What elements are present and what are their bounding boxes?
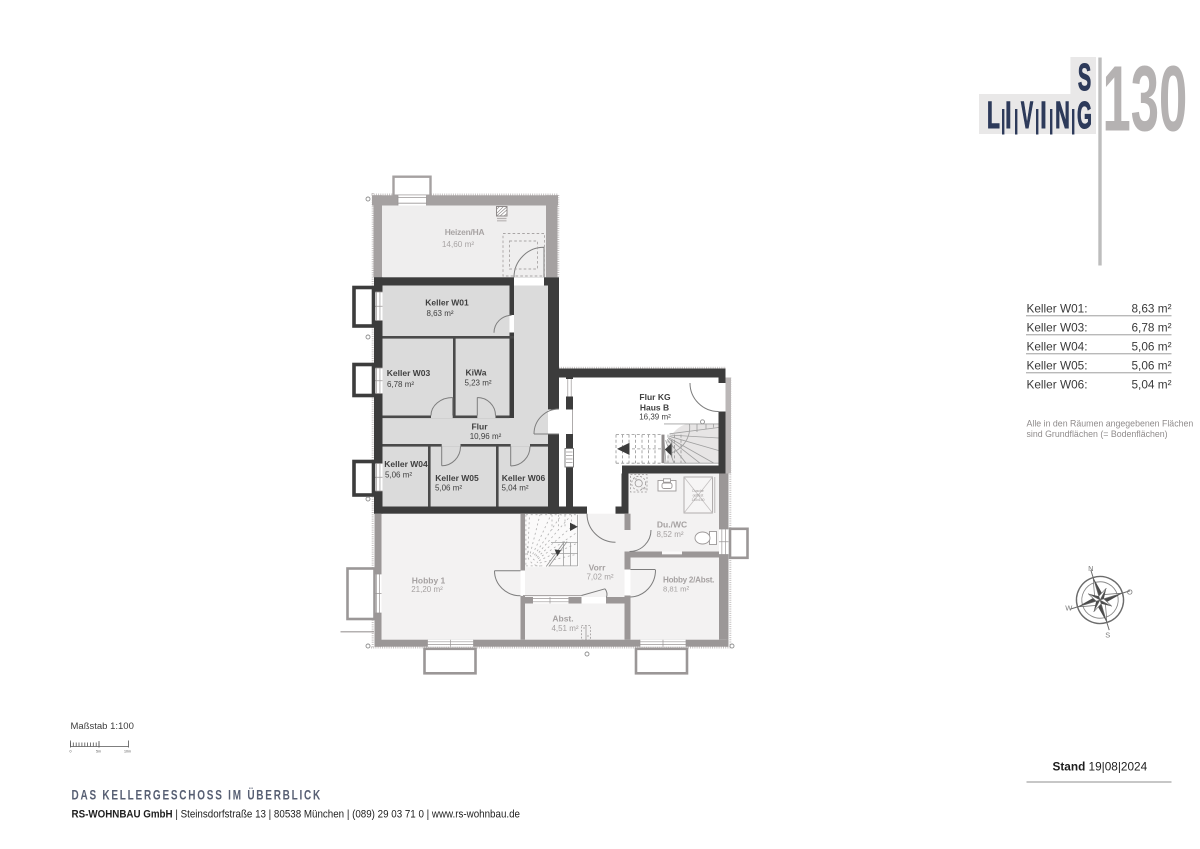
svg-text:5,06 m²: 5,06 m² bbox=[1132, 359, 1172, 373]
svg-text:6,78 m²: 6,78 m² bbox=[1132, 321, 1172, 335]
svg-text:Maßstab 1:100: Maßstab 1:100 bbox=[71, 721, 134, 732]
svg-text:Hobby 1: Hobby 1 bbox=[412, 576, 446, 586]
svg-text:Keller W03: Keller W03 bbox=[387, 368, 431, 378]
svg-text:N: N bbox=[1055, 93, 1070, 137]
svg-text:W: W bbox=[1065, 604, 1073, 613]
svg-text:16,39 m²: 16,39 m² bbox=[639, 413, 671, 422]
svg-text:S: S bbox=[1078, 56, 1091, 99]
svg-text:Alle in den Räumen angegebenen: Alle in den Räumen angegebenen Flächen bbox=[1027, 419, 1194, 429]
svg-text:21,20 m²: 21,20 m² bbox=[411, 585, 443, 594]
svg-text:8,63 m²: 8,63 m² bbox=[1132, 302, 1172, 316]
svg-text:Heizen/HA: Heizen/HA bbox=[445, 227, 485, 237]
svg-text:Keller W05: Keller W05 bbox=[435, 473, 479, 483]
svg-text:sind Grundflächen (= Bodenfläc: sind Grundflächen (= Bodenflächen) bbox=[1027, 429, 1168, 439]
svg-text:Haus B: Haus B bbox=[640, 403, 669, 413]
svg-text:Keller W04:: Keller W04: bbox=[1027, 340, 1088, 354]
svg-text:Stand 19|08|2024: Stand 19|08|2024 bbox=[1053, 760, 1148, 774]
svg-text:8,81 m²: 8,81 m² bbox=[663, 585, 690, 594]
svg-text:Keller W04: Keller W04 bbox=[384, 459, 428, 469]
svg-text:14,60 m²: 14,60 m² bbox=[442, 240, 475, 249]
svg-text:RS-WOHNBAU GmbH | Steinsdorfst: RS-WOHNBAU GmbH | Steinsdorfstraße 13 | … bbox=[72, 809, 521, 821]
svg-text:130: 130 bbox=[1103, 46, 1188, 150]
svg-text:5,04 m²: 5,04 m² bbox=[1132, 378, 1172, 392]
svg-text:5,23 m²: 5,23 m² bbox=[464, 378, 491, 387]
svg-text:Vorr: Vorr bbox=[589, 563, 607, 573]
svg-text:Keller W05:: Keller W05: bbox=[1027, 359, 1088, 373]
svg-text:8,52 m²: 8,52 m² bbox=[656, 530, 683, 539]
svg-text:S: S bbox=[1105, 631, 1110, 640]
svg-text:5m: 5m bbox=[96, 750, 101, 754]
svg-text:Hobby 2/Abst.: Hobby 2/Abst. bbox=[663, 575, 714, 584]
svg-text:Keller W01: Keller W01 bbox=[425, 298, 469, 308]
svg-text:Dusche: Dusche bbox=[692, 489, 704, 493]
svg-text:5,06 m²: 5,06 m² bbox=[435, 484, 462, 493]
svg-text:I: I bbox=[1040, 94, 1046, 137]
svg-text:L: L bbox=[987, 93, 1000, 136]
svg-text:Du./WC: Du./WC bbox=[657, 520, 687, 530]
svg-text:8,63 m²: 8,63 m² bbox=[426, 309, 453, 318]
svg-text:5,06 m²: 5,06 m² bbox=[1132, 340, 1172, 354]
svg-text:6,78 m²: 6,78 m² bbox=[387, 380, 414, 389]
svg-text:5,04 m²: 5,04 m² bbox=[501, 484, 528, 493]
svg-text:O: O bbox=[1127, 588, 1133, 597]
svg-text:gefliest: gefliest bbox=[693, 494, 704, 498]
svg-text:I: I bbox=[1005, 94, 1011, 137]
svg-text:G: G bbox=[1077, 95, 1092, 137]
svg-text:0: 0 bbox=[70, 750, 72, 754]
svg-text:5,06 m²: 5,06 m² bbox=[385, 471, 412, 480]
svg-text:WM: WM bbox=[641, 487, 647, 491]
svg-text:KiWa: KiWa bbox=[466, 368, 487, 378]
svg-text:10,96 m²: 10,96 m² bbox=[470, 432, 502, 441]
svg-text:Flur: Flur bbox=[471, 422, 488, 432]
svg-text:DAS KELLERGESCHOSS IM ÜBERBLIC: DAS KELLERGESCHOSS IM ÜBERBLICK bbox=[72, 788, 323, 803]
svg-text:Keller W06:: Keller W06: bbox=[1027, 378, 1088, 392]
svg-text:Keller W06: Keller W06 bbox=[502, 473, 546, 483]
svg-text:V: V bbox=[1021, 95, 1033, 137]
svg-text:10m: 10m bbox=[124, 750, 131, 754]
svg-text:Abst.: Abst. bbox=[552, 614, 573, 624]
svg-text:Flur KG: Flur KG bbox=[639, 392, 671, 402]
svg-text:140x100: 140x100 bbox=[691, 498, 704, 502]
svg-text:Keller W03:: Keller W03: bbox=[1027, 321, 1088, 335]
svg-text:Keller W01:: Keller W01: bbox=[1027, 302, 1088, 316]
svg-text:7,02 m²: 7,02 m² bbox=[586, 573, 613, 582]
svg-text:N: N bbox=[1088, 564, 1093, 573]
svg-text:4,51 m²: 4,51 m² bbox=[551, 624, 578, 633]
